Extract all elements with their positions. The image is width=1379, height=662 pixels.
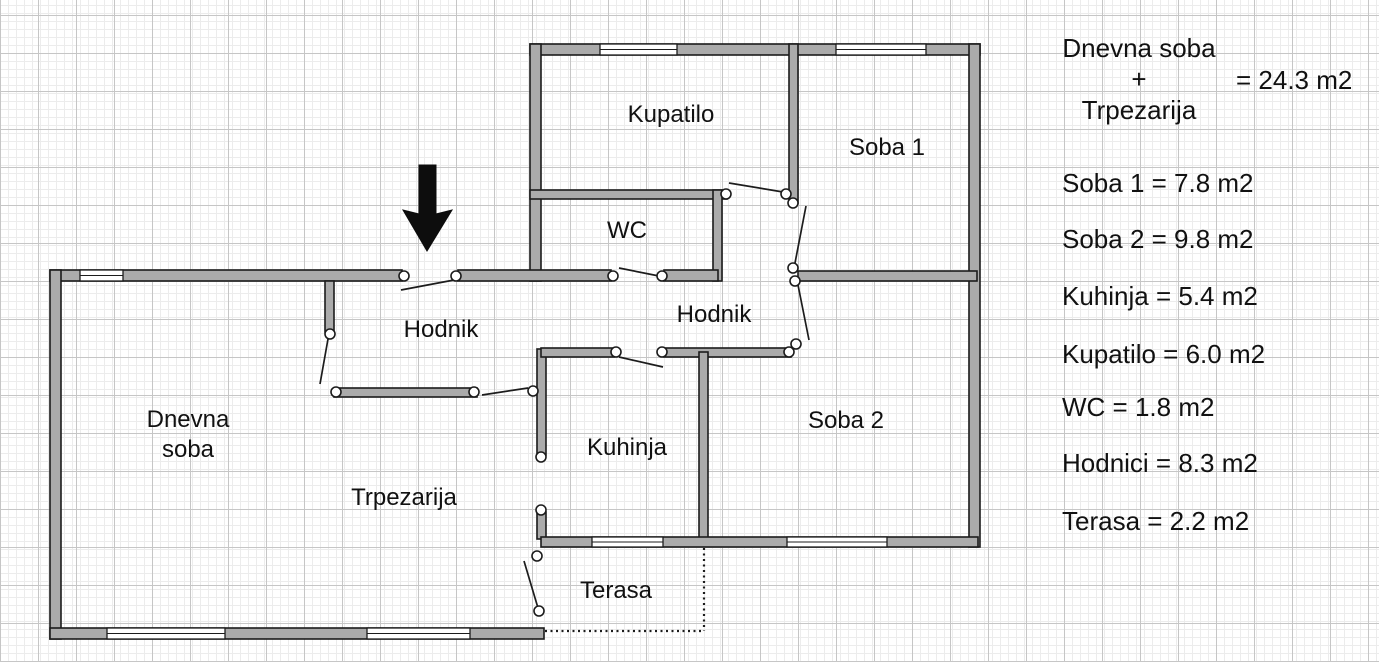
door-leaf: [798, 285, 809, 340]
wall-segment: [969, 44, 980, 547]
wall-segment: [541, 348, 614, 357]
room-label-soba2: Soba 2: [808, 407, 884, 435]
wall-end-cap: [399, 271, 409, 281]
wall-segment: [664, 270, 718, 281]
legend-combined-line1: Dnevna soba: [1058, 33, 1220, 64]
legend-combined-line3: Trpezarija: [1058, 95, 1220, 126]
wall-segment: [664, 348, 791, 357]
legend-item-wc: WC = 1.8 m2: [1062, 393, 1214, 422]
wall-end-cap: [608, 271, 618, 281]
room-label-kuhinja: Kuhinja: [587, 434, 667, 462]
door-caps: [325, 189, 801, 616]
walls: [50, 44, 980, 639]
wall-end-cap: [528, 386, 538, 396]
wall-end-cap: [781, 189, 791, 199]
legend-combined-value: = 24.3 m2: [1236, 66, 1352, 95]
wall-segment: [50, 270, 61, 639]
wall-end-cap: [536, 505, 546, 515]
wall-segment: [325, 281, 334, 332]
room-label-hodnik-right: Hodnik: [677, 301, 752, 329]
legend-item-soba2: Soba 2 = 9.8 m2: [1062, 225, 1254, 254]
wall-segment: [699, 352, 708, 542]
wall-end-cap: [331, 387, 341, 397]
wall-segment: [713, 190, 722, 281]
wall-end-cap: [451, 271, 461, 281]
wall-end-cap: [791, 339, 801, 349]
wall-end-cap: [788, 198, 798, 208]
wall-end-cap: [657, 271, 667, 281]
wall-segment: [530, 190, 727, 199]
door-leaf: [729, 183, 783, 192]
legend-combined-rooms: Dnevna soba + Trpezarija: [1058, 33, 1220, 126]
legend-item-soba1: Soba 1 = 7.8 m2: [1062, 169, 1254, 198]
legend-item-hodnici: Hodnici = 8.3 m2: [1062, 449, 1258, 478]
room-label-dnevna-soba: Dnevna soba: [126, 405, 250, 465]
wall-end-cap: [611, 347, 621, 357]
door-leaf: [619, 357, 663, 367]
wall-end-cap: [790, 276, 800, 286]
entrance-arrow-icon: [403, 165, 452, 251]
wall-end-cap: [536, 452, 546, 462]
legend-combined-line2: +: [1058, 64, 1220, 95]
wall-segment: [789, 44, 798, 203]
door-leaf: [524, 561, 538, 608]
wall-segment: [537, 349, 546, 455]
legend-item-terasa: Terasa = 2.2 m2: [1062, 507, 1249, 536]
door-leaf: [320, 339, 328, 384]
wall-end-cap: [325, 329, 335, 339]
door-leaf: [795, 206, 806, 263]
wall-end-cap: [657, 347, 667, 357]
wall-end-cap: [534, 606, 544, 616]
wall-segment: [530, 44, 541, 281]
room-label-wc: WC: [607, 217, 647, 245]
door-leaf: [401, 280, 454, 290]
room-label-kupatilo: Kupatilo: [628, 101, 715, 129]
legend-item-kupatilo: Kupatilo = 6.0 m2: [1062, 340, 1265, 369]
wall-end-cap: [788, 263, 798, 273]
room-label-trpezarija: Trpezarija: [351, 484, 457, 512]
room-label-soba1: Soba 1: [849, 134, 925, 162]
wall-end-cap: [532, 551, 542, 561]
door-leaf: [482, 388, 528, 395]
room-label-hodnik-left: Hodnik: [404, 316, 479, 344]
door-leaf: [619, 268, 659, 276]
wall-segment: [334, 388, 477, 397]
wall-segment: [537, 512, 546, 539]
legend-item-kuhinja: Kuhinja = 5.4 m2: [1062, 282, 1258, 311]
wall-end-cap: [721, 189, 731, 199]
wall-segment: [458, 270, 611, 281]
wall-segment: [798, 271, 977, 281]
floorplan-page: { "colors": { "wall_fill": "#ababab", "w…: [0, 0, 1379, 662]
wall-end-cap: [469, 387, 479, 397]
room-label-terasa: Terasa: [580, 577, 652, 605]
